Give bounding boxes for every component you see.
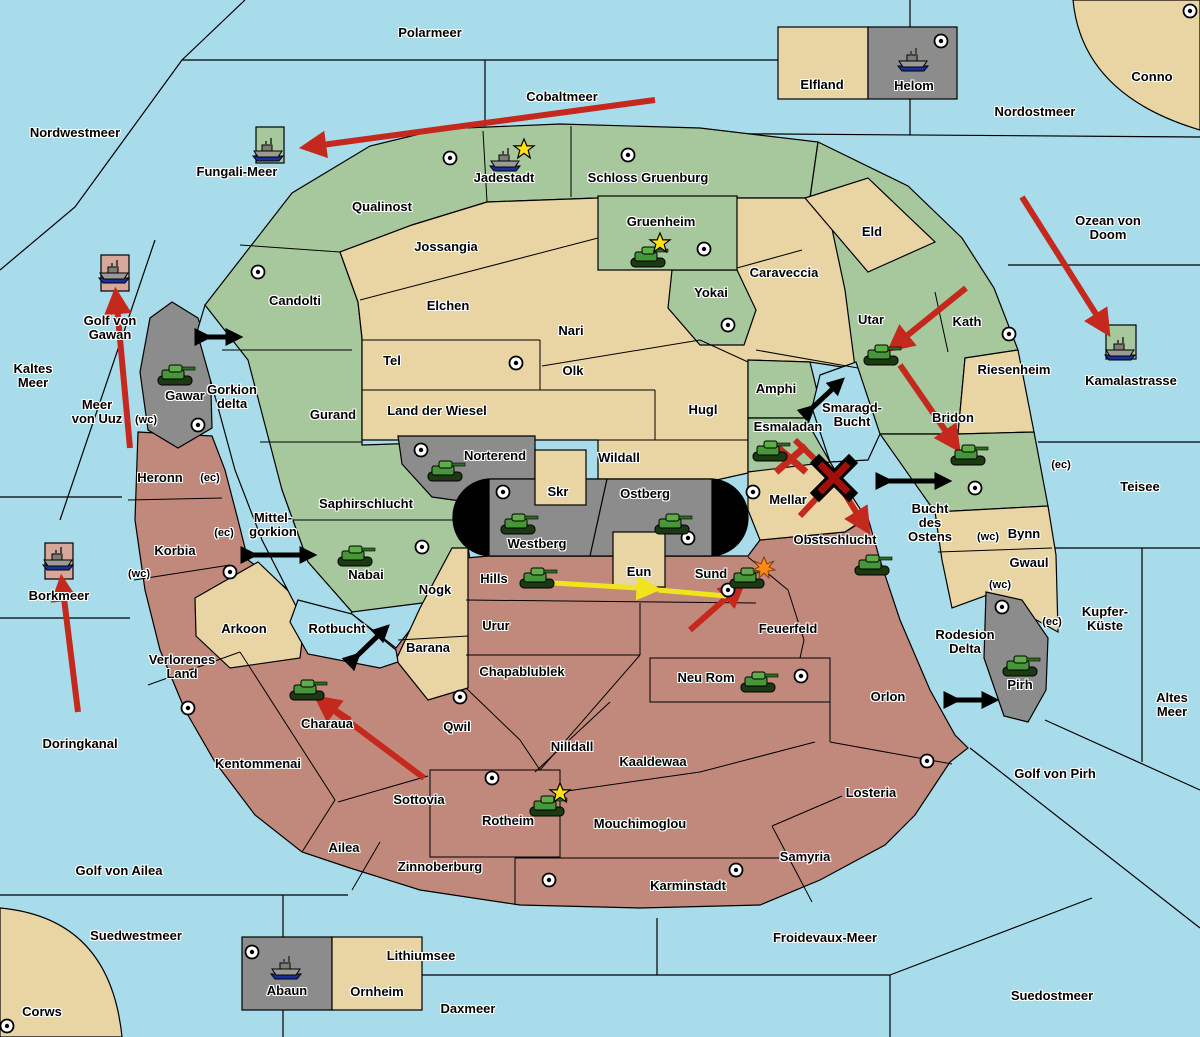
unit-ship-fungali[interactable] (253, 138, 283, 161)
yellow-order-arrow (553, 583, 654, 589)
yellow-order-arrow (658, 590, 726, 596)
star-jadestadt (514, 139, 534, 158)
unit-tank-ostberg[interactable] (655, 514, 692, 534)
supply-center-mellar (747, 486, 760, 499)
supply-center-norterend (415, 444, 428, 457)
supply-center-bridon (969, 482, 982, 495)
supply-center-kath (1003, 328, 1016, 341)
red-order-arrow (116, 295, 130, 448)
supply-center-abaun (246, 946, 259, 959)
game-map: PolarmeerNordwestmeerCobaltmeerNordostme… (0, 0, 1200, 1037)
unit-tank-gawar[interactable] (158, 365, 195, 385)
supply-center-rotheim (486, 772, 499, 785)
red-order-arrow (307, 100, 655, 147)
supply-center-neu-rom (795, 670, 808, 683)
red-order-arrow (62, 582, 78, 712)
unit-tank-obstschlucht[interactable] (855, 555, 892, 575)
supply-center-corws (1, 1020, 14, 1033)
unit-ship-kamalastrasse[interactable] (1105, 337, 1135, 360)
unit-ship-jadestadt[interactable] (490, 148, 520, 171)
unit-tank-charaua[interactable] (290, 680, 327, 700)
red-order-arrow (322, 702, 350, 720)
supply-center-westberg (497, 486, 510, 499)
supply-center-gruenheim (698, 243, 711, 256)
unit-tank-pirh[interactable] (1003, 656, 1040, 676)
unit-tank-utar[interactable] (864, 345, 901, 365)
unit-tank-hills[interactable] (520, 568, 557, 588)
red-order-arrow (900, 365, 956, 446)
black-order-arrow (357, 628, 386, 656)
supply-center-yokai (722, 319, 735, 332)
supply-center-gawar (192, 419, 205, 432)
supply-center-qwil (454, 691, 467, 704)
unit-ship-borkmeer[interactable] (43, 547, 73, 570)
supply-center-schloss-gruenburg (622, 149, 635, 162)
supply-center-losteria (921, 755, 934, 768)
battle-x-outlined (819, 463, 849, 493)
unit-ship-helom[interactable] (898, 48, 928, 71)
unit-tank-nabai[interactable] (338, 546, 375, 566)
supply-center-zinnoberburg (543, 874, 556, 887)
red-order-arrow (893, 288, 966, 347)
black-order-arrow (812, 381, 841, 408)
unit-ship-abaun[interactable] (271, 956, 301, 979)
supply-center-conno (1184, 5, 1197, 18)
supply-center-pirh (996, 601, 1009, 614)
supply-center-candolti (252, 266, 265, 279)
unit-tank-westberg[interactable] (501, 514, 538, 534)
supply-center-karminstadt (730, 864, 743, 877)
unit-tank-bridon[interactable] (951, 445, 988, 465)
supply-center-helom (935, 35, 948, 48)
unit-tank-norterend[interactable] (428, 461, 465, 481)
supply-center-verlorenes-land (182, 702, 195, 715)
map-overlay-layer (0, 0, 1200, 1037)
supply-center-tel (510, 357, 523, 370)
red-order-arrow (1022, 197, 1106, 330)
unit-tank-gruenheim[interactable] (631, 247, 668, 267)
supply-center-jadestadt (444, 152, 457, 165)
supply-center-nabai (416, 541, 429, 554)
supply-center-arkoon (224, 566, 237, 579)
unit-tank-neu-rom[interactable] (741, 672, 778, 692)
unit-ship-gawan[interactable] (99, 260, 129, 283)
